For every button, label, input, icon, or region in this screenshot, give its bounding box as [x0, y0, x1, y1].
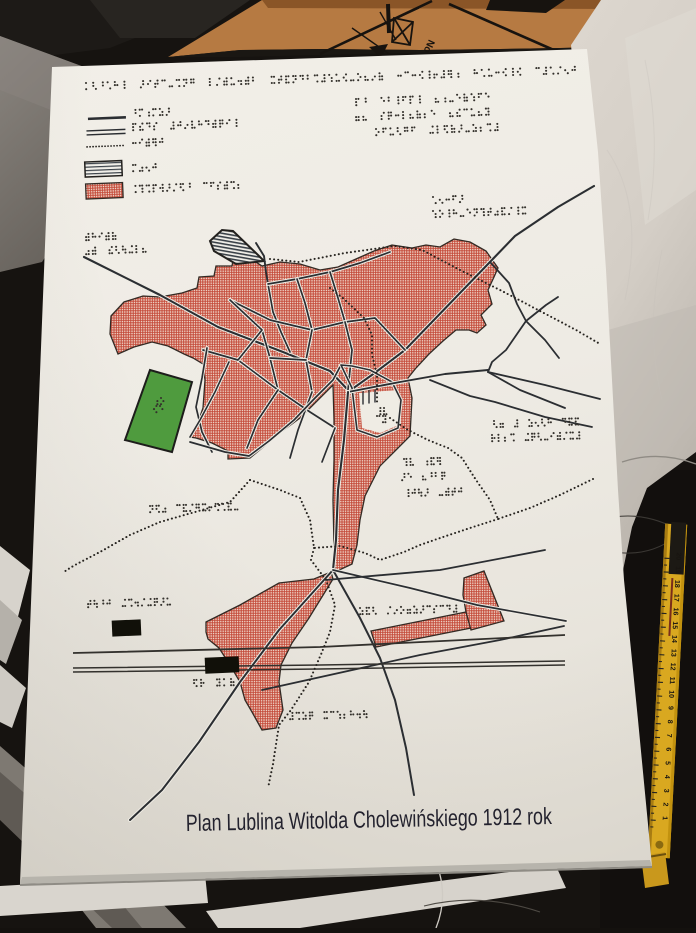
svg-text:10: 10 [667, 690, 674, 698]
svg-text:13: 13 [669, 649, 676, 657]
svg-text:6: 6 [664, 747, 671, 751]
svg-text:4: 4 [663, 775, 670, 779]
svg-text:5: 5 [664, 761, 671, 765]
svg-text:19: 19 [674, 566, 681, 574]
svg-text:16: 16 [671, 607, 678, 615]
svg-text:14: 14 [670, 635, 677, 643]
svg-text:1: 1 [661, 816, 668, 820]
svg-text:15: 15 [671, 621, 678, 629]
svg-text:12: 12 [669, 663, 676, 671]
svg-text:9: 9 [666, 706, 673, 710]
svg-text:2: 2 [661, 802, 668, 806]
svg-text:20: 20 [674, 552, 681, 560]
svg-text:8: 8 [666, 720, 673, 724]
svg-text:3: 3 [662, 788, 669, 792]
svg-text:11: 11 [668, 676, 675, 684]
svg-text:18: 18 [673, 580, 680, 588]
svg-text:7: 7 [665, 733, 672, 737]
svg-text:17: 17 [672, 594, 679, 602]
